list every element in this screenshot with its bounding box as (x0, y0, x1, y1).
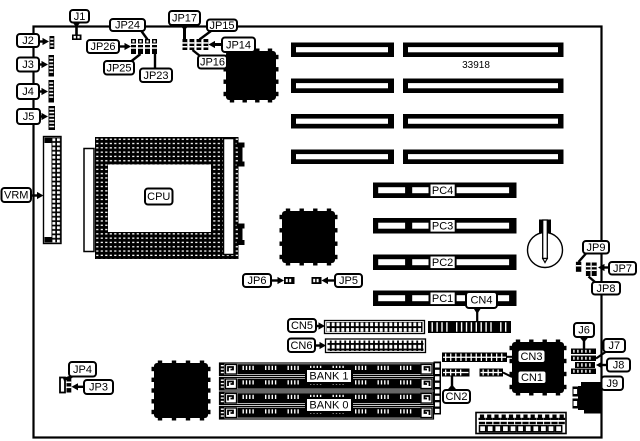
svg-text:J1: J1 (74, 11, 86, 23)
svg-text:JP15: JP15 (209, 20, 234, 32)
svg-text:JP23: JP23 (143, 70, 168, 82)
svg-text:J6: J6 (578, 325, 590, 337)
svg-text:CPU: CPU (147, 191, 170, 203)
svg-text:BANK 0: BANK 0 (309, 400, 348, 412)
svg-text:JP3: JP3 (89, 382, 108, 394)
svg-text:CN4: CN4 (470, 295, 492, 307)
svg-text:VRM: VRM (4, 190, 28, 202)
svg-text:CN2: CN2 (445, 391, 467, 403)
svg-text:JP25: JP25 (106, 62, 131, 74)
svg-text:JP9: JP9 (587, 242, 606, 254)
svg-text:JP7: JP7 (613, 263, 632, 275)
svg-text:CN5: CN5 (291, 320, 313, 332)
svg-text:JP5: JP5 (339, 275, 358, 287)
svg-text:BANK 1: BANK 1 (309, 371, 348, 383)
svg-text:JP26: JP26 (90, 41, 115, 53)
svg-text:JP24: JP24 (115, 20, 140, 32)
svg-text:33918: 33918 (462, 60, 490, 71)
svg-text:JP17: JP17 (172, 13, 197, 25)
svg-text:JP4: JP4 (73, 364, 92, 376)
svg-text:PC3: PC3 (432, 220, 453, 232)
svg-text:J2: J2 (22, 35, 34, 47)
svg-text:J4: J4 (22, 86, 34, 98)
svg-text:J5: J5 (23, 111, 35, 123)
svg-text:PC4: PC4 (432, 185, 453, 197)
svg-text:PC1: PC1 (432, 293, 453, 305)
svg-text:J8: J8 (613, 360, 625, 372)
svg-text:CN1: CN1 (521, 372, 543, 384)
svg-text:JP14: JP14 (226, 39, 251, 51)
svg-text:JP6: JP6 (248, 275, 267, 287)
svg-text:CN3: CN3 (520, 351, 542, 363)
svg-text:CN6: CN6 (290, 340, 312, 352)
svg-text:JP8: JP8 (597, 283, 616, 295)
svg-text:J7: J7 (608, 340, 620, 352)
svg-text:J9: J9 (606, 378, 618, 390)
svg-text:J3: J3 (22, 59, 34, 71)
svg-text:JP16: JP16 (200, 57, 225, 69)
svg-text:PC2: PC2 (432, 257, 453, 269)
